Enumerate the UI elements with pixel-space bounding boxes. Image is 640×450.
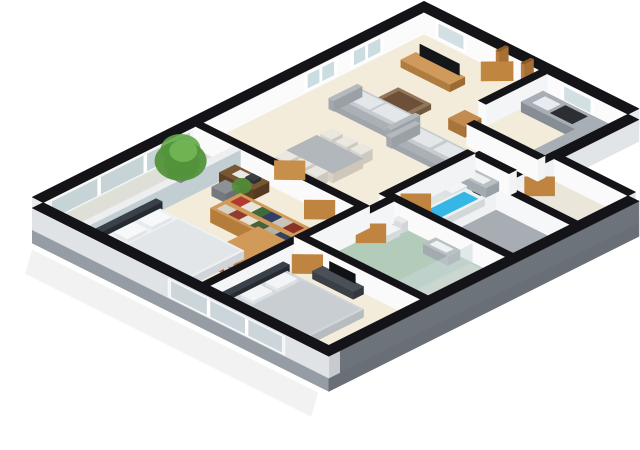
bedroom-1-door-panel [304, 200, 335, 219]
floorplan-canvas [0, 0, 640, 450]
floorplan-3d-render [0, 0, 640, 450]
dining-side-door-panel [274, 161, 305, 180]
window-northwest-1-mullion [366, 45, 368, 59]
plant-foliage-4 [169, 140, 197, 162]
balcony-glazing-mullion-1 [144, 154, 147, 172]
bookshelf-plant [232, 178, 252, 194]
balcony-glazing-mullion-2 [98, 178, 101, 196]
southwest-glazing-mullion-1 [207, 300, 210, 317]
window-northwest-2-mullion [320, 68, 322, 83]
entry-door-panel [481, 62, 513, 81]
southwest-glazing-mullion-2 [245, 319, 248, 336]
